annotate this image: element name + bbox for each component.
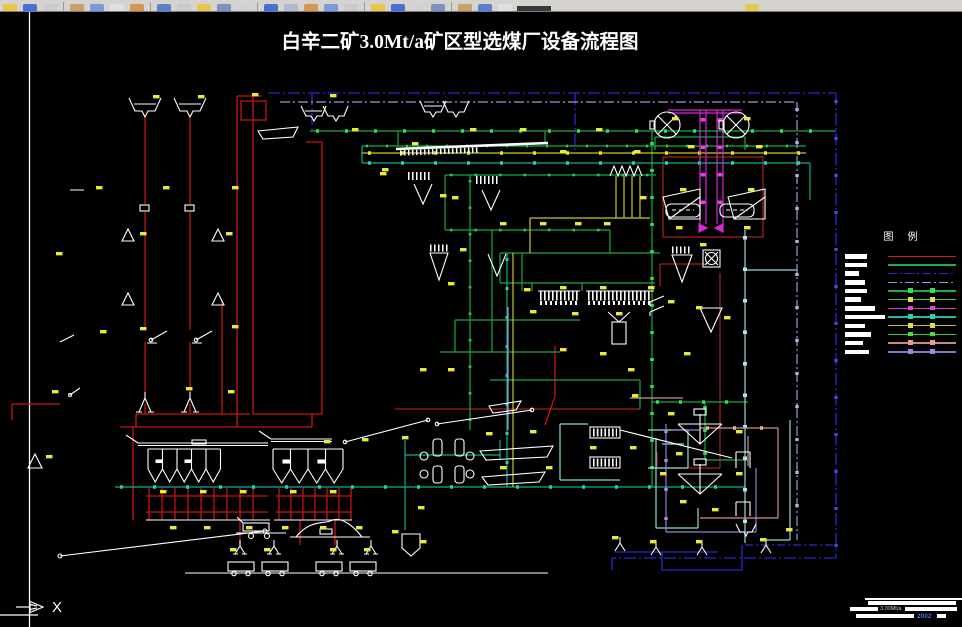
- toolbar-icon[interactable]: [237, 4, 251, 12]
- toolbar-separator: [257, 2, 258, 11]
- yellow-flow-lines: [362, 153, 806, 487]
- legend-header: 图例: [853, 228, 962, 243]
- legend-line-marker: [930, 340, 935, 345]
- legend-row: [843, 304, 962, 313]
- toolbar-icon[interactable]: [431, 4, 445, 12]
- toolbar-separator: [150, 2, 151, 11]
- legend-line-marker: [908, 288, 913, 293]
- toolbar: [0, 0, 962, 12]
- toolbar-icon[interactable]: [70, 4, 84, 12]
- legend-label-bar: [845, 341, 863, 346]
- legend-line-sample: [888, 351, 956, 352]
- legend-line-marker: [908, 306, 913, 311]
- toolbar-separator: [364, 2, 365, 11]
- toolbar-icon[interactable]: [324, 4, 338, 12]
- ucs-icon: [16, 602, 43, 613]
- legend-line-sample: [888, 264, 956, 265]
- legend-label-bar: [845, 271, 859, 276]
- equipment-tag-labels: [46, 93, 793, 551]
- legend-row: [843, 295, 962, 304]
- legend-line-marker: [930, 323, 935, 328]
- legend-row: [843, 322, 962, 331]
- legend-line-marker: [930, 349, 935, 354]
- legend-row: [843, 287, 962, 296]
- legend-label-bar: [845, 263, 867, 268]
- legend-line-sample: [888, 342, 956, 343]
- legend-line-sample: [888, 273, 956, 274]
- legend-row: [843, 261, 962, 270]
- title-block: 3.00Mt/a 2002: [843, 598, 962, 620]
- toolbar-icon[interactable]: [304, 4, 318, 12]
- legend-row: [843, 313, 962, 322]
- toolbar-icon[interactable]: [110, 4, 124, 12]
- legend-line-sample: [888, 325, 956, 326]
- legend-line-sample: [888, 316, 956, 317]
- application-window: X 白辛二矿3.0Mt/a矿区型选煤厂设备流程图: [0, 0, 962, 627]
- toolbar-icon[interactable]: [130, 4, 144, 12]
- toolbar-icon[interactable]: [284, 4, 298, 12]
- title-block-rule: [865, 598, 962, 600]
- toolbar-icon[interactable]: [157, 4, 171, 12]
- legend-line-sample: [888, 290, 956, 291]
- toolbar-icon[interactable]: [498, 4, 512, 12]
- drawing-title: 白辛二矿3.0Mt/a矿区型选煤厂设备流程图: [282, 30, 639, 53]
- toolbar-icon[interactable]: [90, 4, 104, 12]
- title-block-capacity: 3.00Mt/a: [880, 606, 901, 612]
- ucs-x-label: X: [52, 599, 62, 616]
- legend-label-bar: [845, 280, 865, 285]
- legend-line-marker: [908, 340, 913, 345]
- equipment-symbols: [28, 98, 771, 576]
- toolbar-icon[interactable]: [264, 4, 278, 12]
- title-block-row: 2002: [843, 614, 962, 620]
- toolbar-icon[interactable]: [745, 4, 759, 12]
- legend-line-marker: [908, 349, 913, 354]
- toolbar-separator: [451, 2, 452, 11]
- toolbar-separator: [63, 2, 64, 11]
- toolbar-icon[interactable]: [391, 4, 405, 12]
- legend-label-bar: [845, 324, 865, 329]
- title-block-row: [843, 601, 962, 607]
- toolbar-icon[interactable]: [371, 4, 385, 12]
- legend-rows: [843, 252, 962, 356]
- legend-line-marker: [908, 323, 913, 328]
- legend-label-bar: [845, 350, 869, 355]
- legend-label-bar: [845, 315, 885, 320]
- legend-line-sample: [888, 308, 956, 309]
- legend-line-marker: [930, 314, 935, 319]
- purple-flow-lines: [666, 424, 756, 532]
- toolbar-layer-text-clipped[interactable]: [517, 6, 551, 11]
- toolbar-icon[interactable]: [217, 4, 231, 12]
- blue-flow-lines: [268, 93, 836, 572]
- legend-row: [843, 278, 962, 287]
- legend-line-marker: [930, 332, 935, 337]
- legend-row: [843, 339, 962, 348]
- toolbar-icon[interactable]: [478, 4, 492, 12]
- legend-row: [843, 348, 962, 357]
- legend-line-sample: [888, 256, 956, 257]
- sheet-border: [0, 12, 38, 627]
- legend-line-sample: [888, 334, 956, 335]
- toolbar-icon[interactable]: [411, 4, 425, 12]
- toolbar-icon[interactable]: [344, 4, 358, 12]
- legend-line-marker: [908, 314, 913, 319]
- legend-line-sample: [888, 299, 956, 300]
- legend-label-bar: [845, 254, 867, 259]
- toolbar-icon[interactable]: [23, 4, 37, 12]
- legend-label-bar: [845, 332, 871, 337]
- legend-row: [843, 252, 962, 261]
- title-block-year: 2002: [917, 613, 931, 620]
- legend-line-marker: [930, 288, 935, 293]
- legend-row: [843, 269, 962, 278]
- legend-line-sample: [888, 282, 956, 283]
- legend-label-bar: [845, 297, 861, 302]
- cyan-flow-lines: [560, 230, 797, 543]
- legend-line-marker: [908, 332, 913, 337]
- drawing-canvas[interactable]: X 白辛二矿3.0Mt/a矿区型选煤厂设备流程图: [0, 0, 962, 627]
- legend-line-marker: [908, 297, 913, 302]
- train-wagons: [228, 562, 376, 576]
- legend-label-bar: [845, 289, 867, 294]
- legend-row: [843, 330, 962, 339]
- legend: 图例: [843, 228, 962, 356]
- green-flow-lines: [310, 131, 836, 487]
- toolbar-icon[interactable]: [3, 4, 17, 12]
- legend-label-bar: [845, 306, 875, 311]
- toolbar-icon[interactable]: [43, 4, 57, 12]
- toolbar-icon[interactable]: [197, 4, 211, 12]
- toolbar-icon[interactable]: [458, 4, 472, 12]
- dark-red-flow-lines: [395, 157, 763, 468]
- toolbar-icon[interactable]: [177, 4, 191, 12]
- title-block-row: 3.00Mt/a: [843, 607, 962, 613]
- legend-line-marker: [930, 297, 935, 302]
- legend-line-marker: [930, 306, 935, 311]
